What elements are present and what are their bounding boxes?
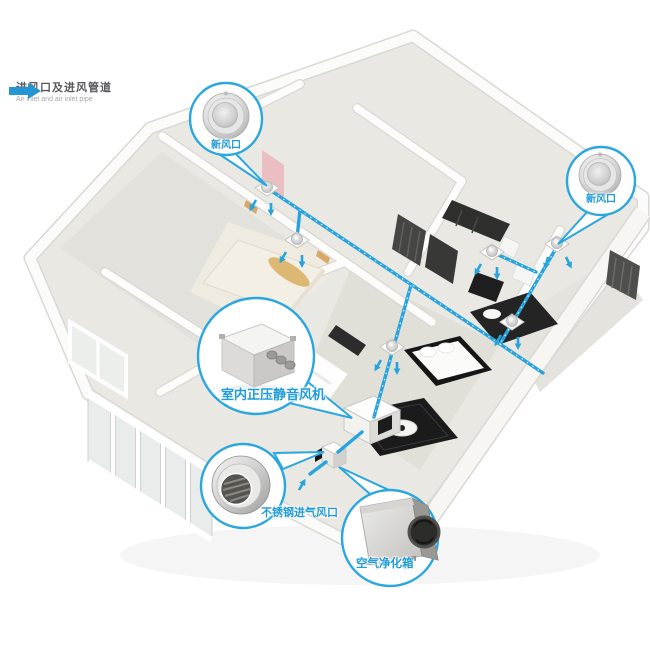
ventilation-diagram: 进风口及进风管道 Air inlet and air inlet pipe 新风… — [0, 0, 650, 656]
label-fresh-air-right: 新风口 — [586, 190, 616, 205]
house-illustration — [30, 36, 643, 585]
legend: 进风口及进风管道 Air inlet and air inlet pipe — [8, 82, 112, 104]
label-stainless-intake: 不锈钢进气风口 — [261, 504, 338, 520]
label-indoor-fan: 室内正压静音风机 — [221, 384, 325, 403]
air-inlet-arrow-icon — [8, 82, 42, 100]
label-air-purifier: 空气净化箱 — [356, 555, 414, 571]
label-fresh-air-top: 新风口 — [211, 136, 241, 151]
